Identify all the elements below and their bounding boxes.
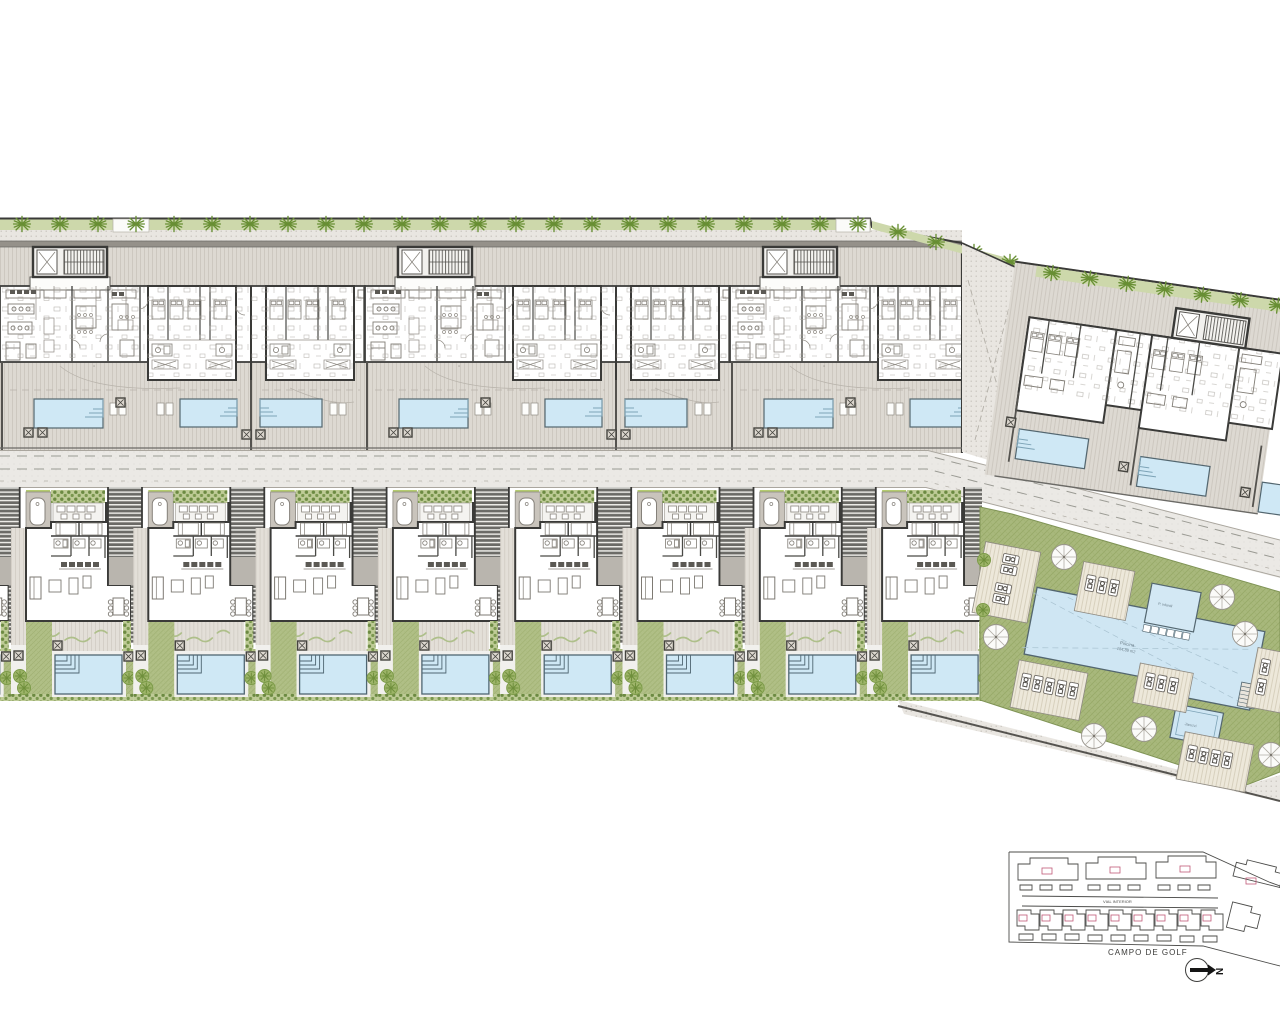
svg-text:N: N <box>1215 968 1226 975</box>
svg-text:VIAL INTERIOR: VIAL INTERIOR <box>1103 899 1132 904</box>
svg-text:CAMPO DE GOLF: CAMPO DE GOLF <box>1108 948 1188 957</box>
